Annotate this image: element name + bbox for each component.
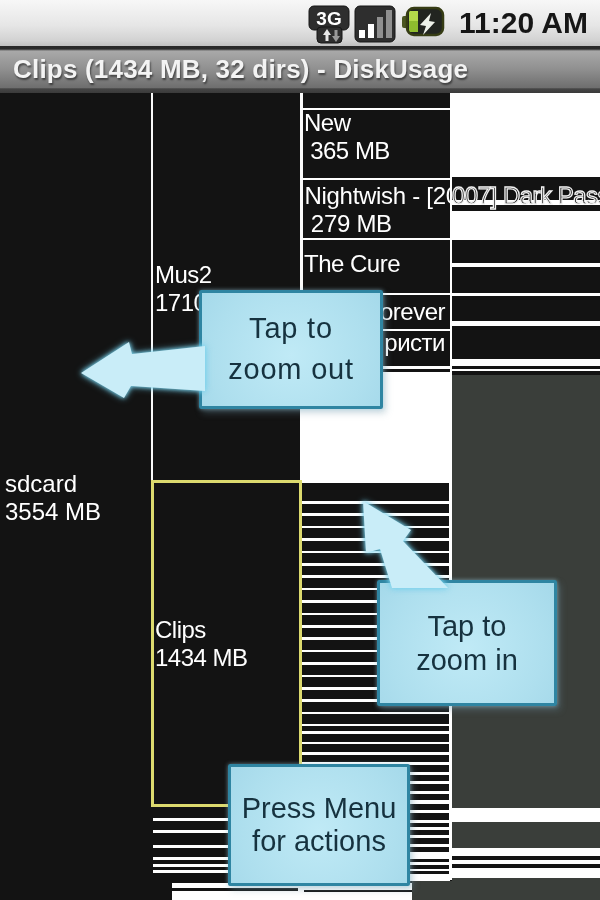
- svg-text:3G: 3G: [316, 8, 341, 29]
